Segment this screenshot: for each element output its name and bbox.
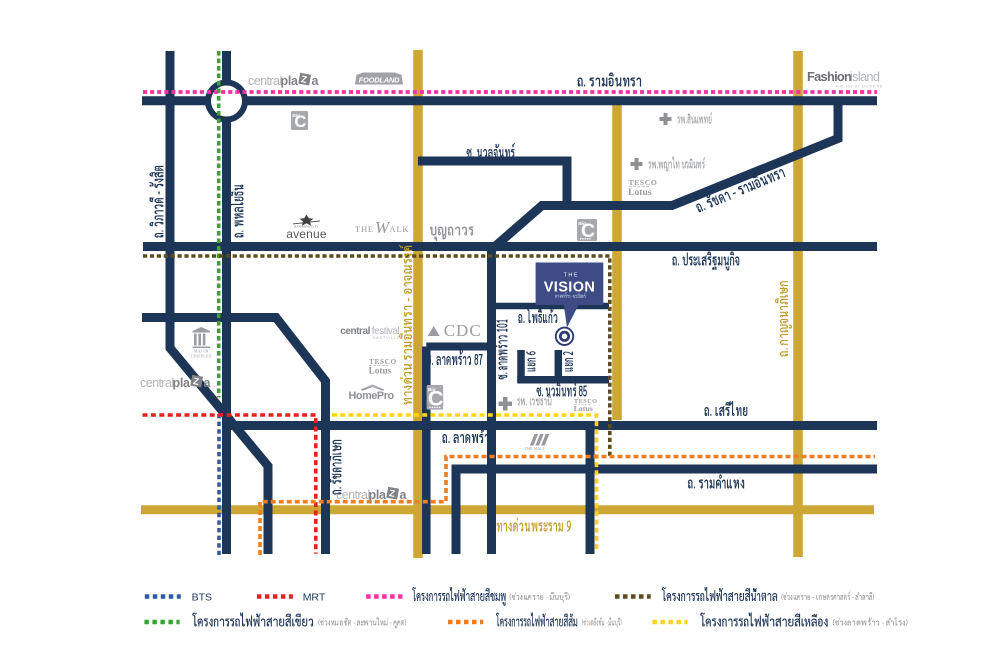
- svg-text:THE JOY OF SHOPPING: THE JOY OF SHOPPING: [836, 85, 883, 89]
- svg-text:TESCO: TESCO: [629, 178, 658, 187]
- svg-text:Lotus: Lotus: [369, 366, 392, 376]
- svg-text:a: a: [400, 488, 408, 502]
- svg-text:EASTVILLE: EASTVILLE: [373, 335, 401, 340]
- svg-text:pla: pla: [173, 376, 192, 390]
- svg-text:MRT: MRT: [303, 592, 326, 604]
- svg-text:avenue: avenue: [286, 227, 327, 241]
- svg-text:a: a: [312, 74, 320, 88]
- svg-text:CINEPLEX: CINEPLEX: [191, 354, 212, 359]
- svg-text:central: central: [140, 376, 174, 390]
- svg-text:CDC: CDC: [444, 321, 482, 340]
- svg-text:HomePro: HomePro: [349, 390, 395, 402]
- svg-text:THE: THE: [564, 273, 579, 279]
- svg-text:pla: pla: [281, 74, 300, 88]
- svg-text:FOODLAND: FOODLAND: [359, 76, 400, 85]
- svg-text:pla: pla: [369, 488, 388, 502]
- svg-text:Lotus: Lotus: [628, 187, 652, 198]
- svg-text:a: a: [204, 376, 212, 390]
- svg-text:island: island: [850, 69, 880, 84]
- svg-text:central: central: [248, 74, 282, 88]
- svg-text:THE: THE: [355, 224, 374, 234]
- svg-text:ALK: ALK: [390, 224, 410, 234]
- svg-text:Lotus: Lotus: [574, 404, 593, 413]
- svg-text:C: C: [294, 112, 306, 131]
- svg-text:BTS: BTS: [192, 592, 212, 604]
- svg-text:THE MALL: THE MALL: [525, 447, 545, 451]
- svg-text:VISION: VISION: [544, 280, 596, 296]
- svg-text:Fashion: Fashion: [807, 69, 852, 84]
- svg-text:TESCO: TESCO: [369, 357, 397, 366]
- svg-text:central: central: [340, 326, 370, 337]
